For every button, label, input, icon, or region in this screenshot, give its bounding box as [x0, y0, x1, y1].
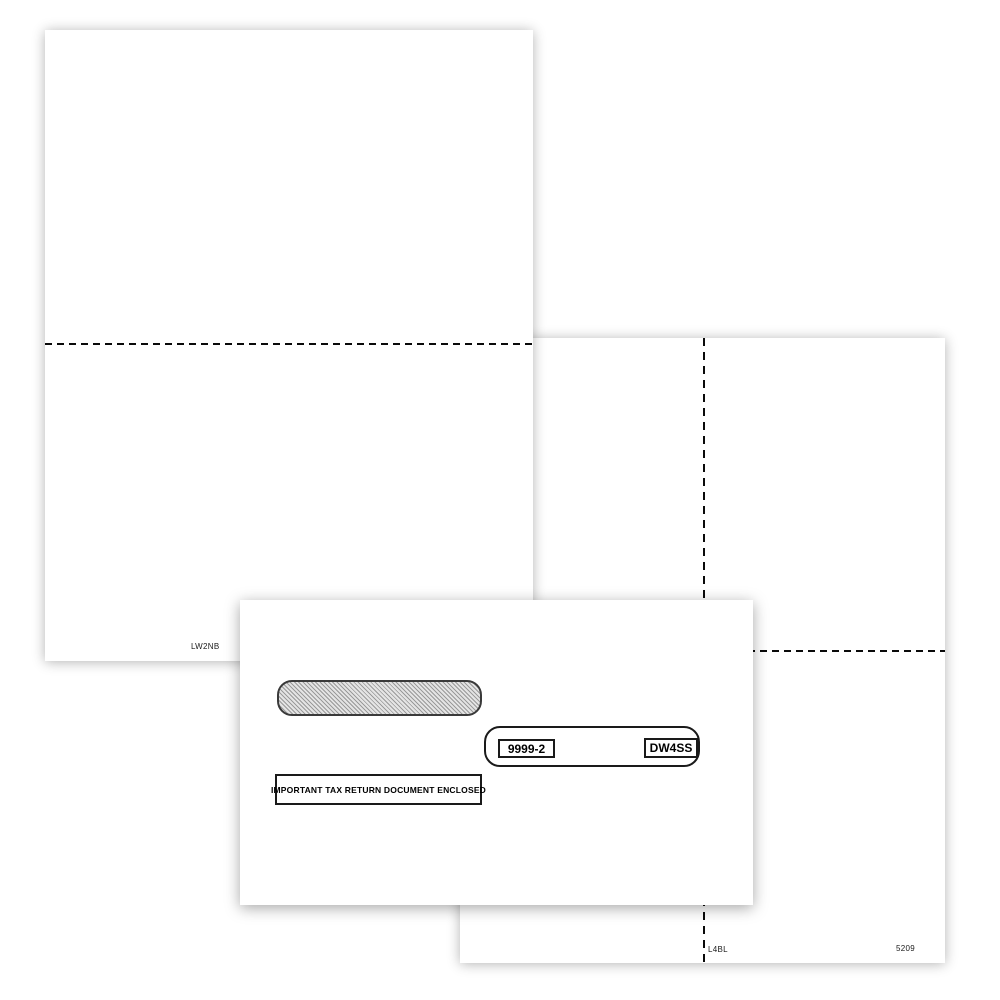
tax-notice-box: IMPORTANT TAX RETURN DOCUMENT ENCLOSED — [275, 774, 482, 805]
double-window-envelope: 9999-2 DW4SS IMPORTANT TAX RETURN DOCUME… — [240, 600, 753, 905]
envelope-code-label: DW4SS — [650, 741, 693, 755]
envelope-permit-outline: 9999-2 DW4SS — [484, 726, 700, 767]
envelope-address-window — [277, 680, 482, 716]
sheet-code-label: LW2NB — [191, 642, 219, 651]
sheet-form-number-label: 5209 — [896, 944, 915, 953]
form-number-label: 9999-2 — [508, 742, 545, 756]
envelope-code-box: DW4SS — [644, 738, 698, 758]
tax-form-product-photo: L4BL 5209 LW2NB 9999-2 DW4SS IMPORTANT T… — [0, 0, 1000, 1000]
sheet-code-label: L4BL — [708, 945, 728, 954]
form-number-box: 9999-2 — [498, 739, 555, 758]
w2-blank-half-fold-sheet: LW2NB — [45, 30, 533, 661]
tax-notice-label: IMPORTANT TAX RETURN DOCUMENT ENCLOSED — [271, 785, 486, 795]
horizontal-perforation-line — [45, 343, 533, 345]
